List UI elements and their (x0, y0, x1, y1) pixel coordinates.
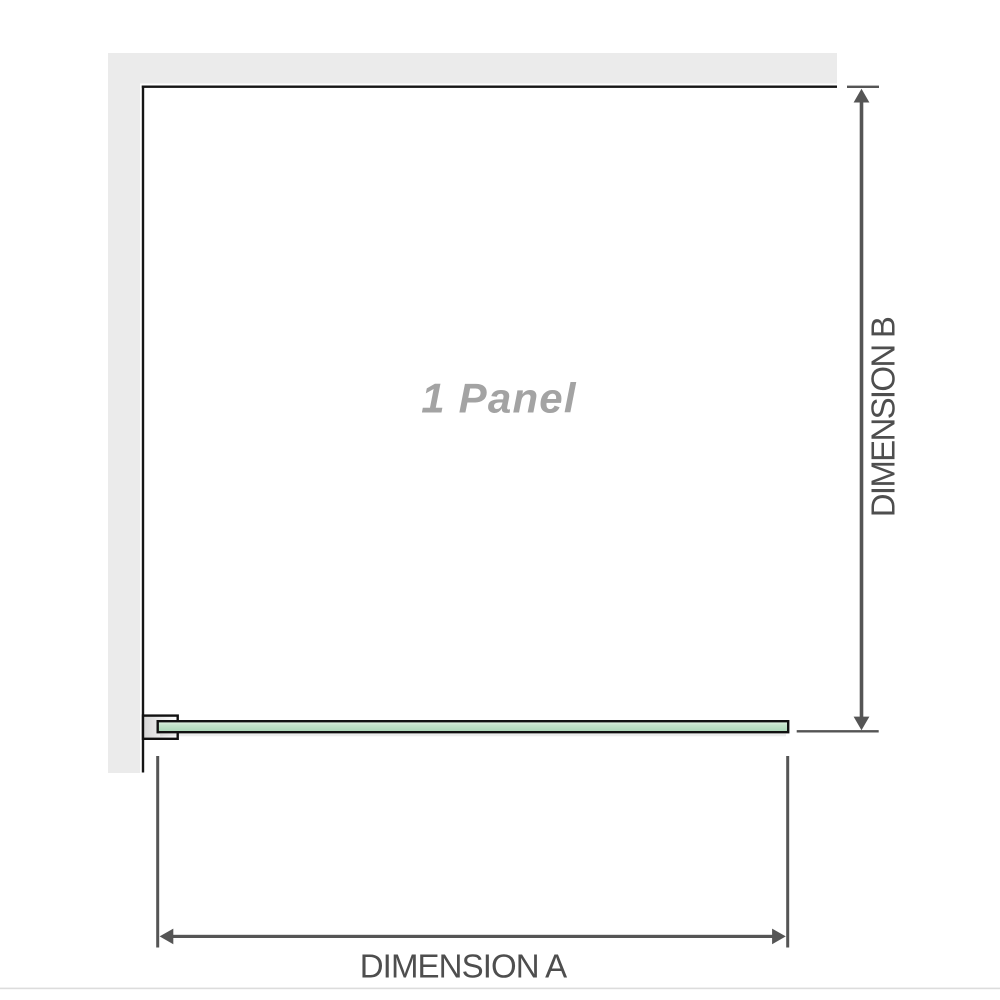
svg-text:1 Panel: 1 Panel (421, 375, 577, 422)
svg-text:DIMENSION A: DIMENSION A (360, 948, 567, 985)
svg-text:DIMENSION B: DIMENSION B (865, 317, 902, 517)
